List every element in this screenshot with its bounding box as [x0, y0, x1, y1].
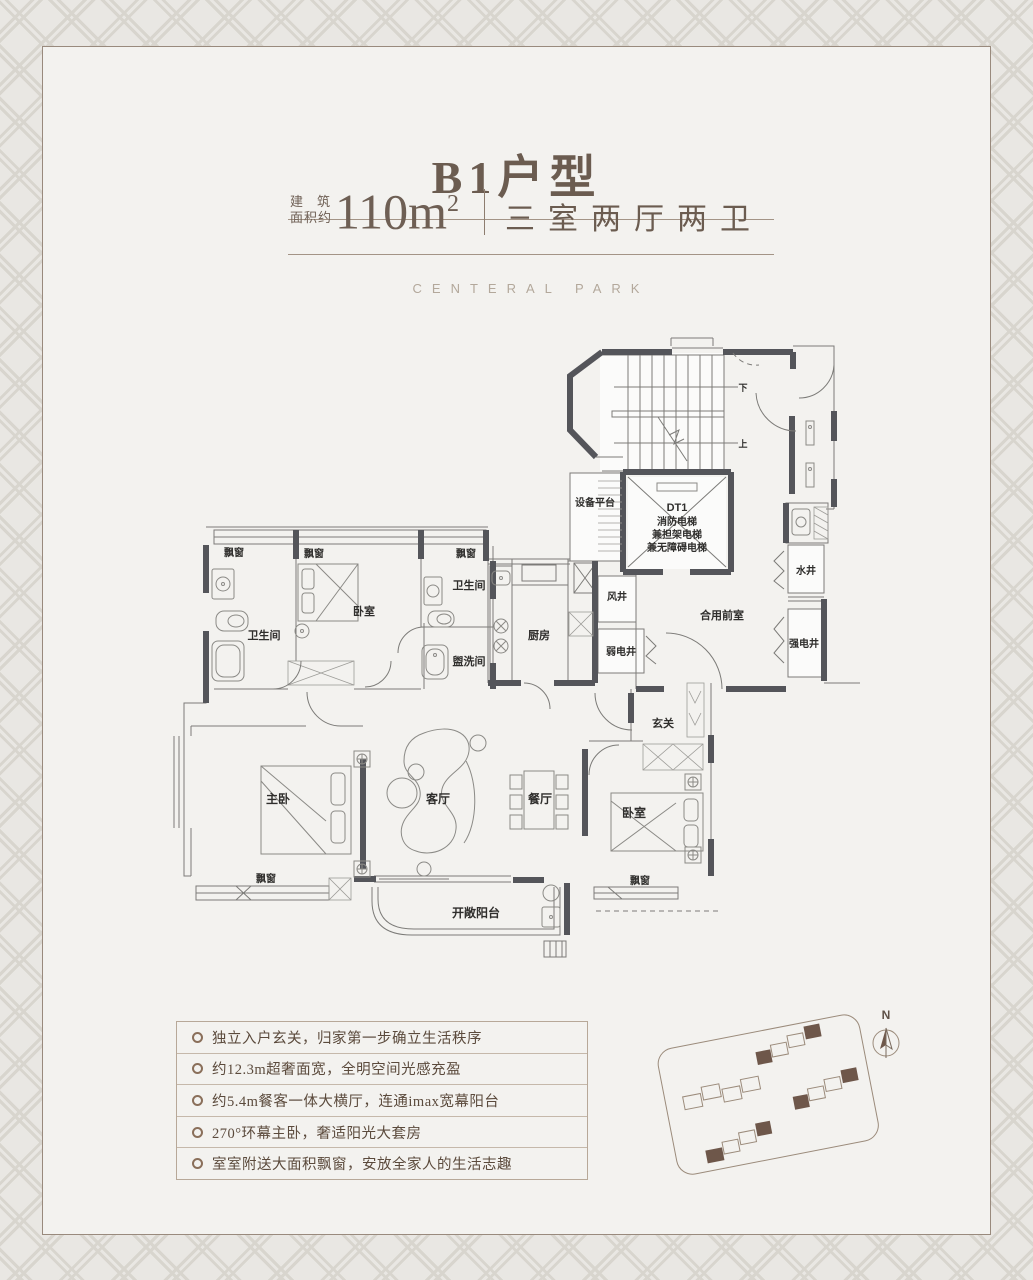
bullet-icon — [192, 1063, 203, 1074]
stairs-down-label: 下 — [738, 383, 747, 393]
building-highlight-2 — [752, 1024, 824, 1065]
elevator-id: DT1 — [667, 502, 688, 514]
bay-window-label-3: 飘窗 — [456, 547, 476, 560]
thin-walls — [174, 338, 860, 957]
elevator-type2: 兼担架电梯 — [652, 528, 702, 541]
bay-window-label-5: 飘窗 — [630, 874, 650, 887]
feature-text: 室室附送大面积飘窗，安放全家人的生活志趣 — [212, 1153, 512, 1174]
feature-list: 独立入户玄关，归家第一步确立生活秩序 约12.3m超奢面宽，全明空间光感充盈 约… — [176, 1021, 588, 1180]
building-outline-1 — [681, 1076, 761, 1110]
brand-text: CENTERAL PARK — [288, 281, 774, 296]
kitchen-label: 厨房 — [528, 628, 550, 642]
layout-text: 三室两厅两卫 — [505, 194, 763, 238]
header-vertical-divider — [484, 189, 485, 235]
balcony-label: 开敞阳台 — [452, 905, 500, 920]
bedroom-right-label: 卧室 — [622, 805, 646, 820]
water-shaft-label: 水井 — [795, 564, 816, 577]
bay-window-label-1: 飘窗 — [224, 546, 244, 559]
air-shaft-label: 风井 — [607, 590, 627, 603]
brochure-page: { "header": { "title": "B1户型", "area_lab… — [0, 0, 1033, 1280]
feature-text: 约12.3m超奢面宽，全明空间光感充盈 — [212, 1058, 461, 1079]
content-panel: B1户型 建筑 面积约 110m2 三室两厅两卫 CENTERAL PARK — [42, 46, 991, 1235]
building-highlight-4 — [702, 1121, 775, 1164]
closets-hatch — [288, 507, 828, 900]
feature-text: 约5.4m餐客一体大横厅，连通imax宽幕阳台 — [212, 1090, 499, 1111]
site-boundary — [655, 1012, 881, 1177]
bullet-icon — [192, 1032, 203, 1043]
north-label: N — [882, 1008, 891, 1022]
washroom-label: 盥洗间 — [453, 654, 486, 668]
bedroom-top-label: 卧室 — [353, 604, 375, 618]
north-compass-icon: N — [873, 1008, 899, 1058]
bullet-icon — [192, 1127, 203, 1138]
area-value: 110m2 — [335, 177, 459, 239]
feature-item-1: 独立入户玄关，归家第一步确立生活秩序 — [177, 1022, 587, 1053]
dining-room-label: 餐厅 — [528, 791, 552, 806]
shared-lobby-label: 合用前室 — [700, 608, 744, 622]
feature-text: 独立入户玄关，归家第一步确立生活秩序 — [212, 1027, 482, 1048]
master-bedroom-label: 主卧 — [266, 791, 290, 806]
area-superscript: 2 — [447, 191, 459, 217]
floor-plan: 下 上 DT1 消防电梯 兼担架电梯 兼无障碍电梯 — [166, 331, 876, 976]
equipment-platform-label: 设备平台 — [575, 496, 615, 509]
site-plan: N — [646, 1001, 926, 1211]
site-boundary-group — [655, 1012, 881, 1177]
bay-window-label-2: 飘窗 — [304, 547, 324, 560]
bullet-icon — [192, 1095, 203, 1106]
living-room-label: 客厅 — [425, 791, 450, 806]
stairs-up-label: 上 — [738, 438, 747, 449]
strong-elec-shaft-label: 强电井 — [789, 637, 819, 650]
bullet-icon — [192, 1158, 203, 1169]
weak-elec-shaft-label: 弱电井 — [606, 645, 636, 658]
feature-text: 270°环幕主卧，奢适阳光大套房 — [212, 1122, 422, 1143]
feature-item-3: 约5.4m餐客一体大横厅，连通imax宽幕阳台 — [177, 1084, 587, 1116]
elevator-type1: 消防电梯 — [657, 515, 697, 528]
feature-item-5: 室室附送大面积飘窗，安放全家人的生活志趣 — [177, 1147, 587, 1179]
feature-item-4: 270°环幕主卧，奢适阳光大套房 — [177, 1116, 587, 1148]
bay-window-label-4: 飘窗 — [256, 872, 276, 885]
feature-item-2: 约12.3m超奢面宽，全明空间光感充盈 — [177, 1053, 587, 1085]
building-highlight-3 — [789, 1067, 861, 1109]
elevator-type3: 兼无障碍电梯 — [647, 541, 707, 554]
foyer-label: 玄关 — [652, 716, 674, 730]
divider-bottom — [288, 254, 774, 255]
bath-right-label: 卫生间 — [453, 578, 486, 592]
bath-left-label: 卫生间 — [248, 628, 281, 642]
